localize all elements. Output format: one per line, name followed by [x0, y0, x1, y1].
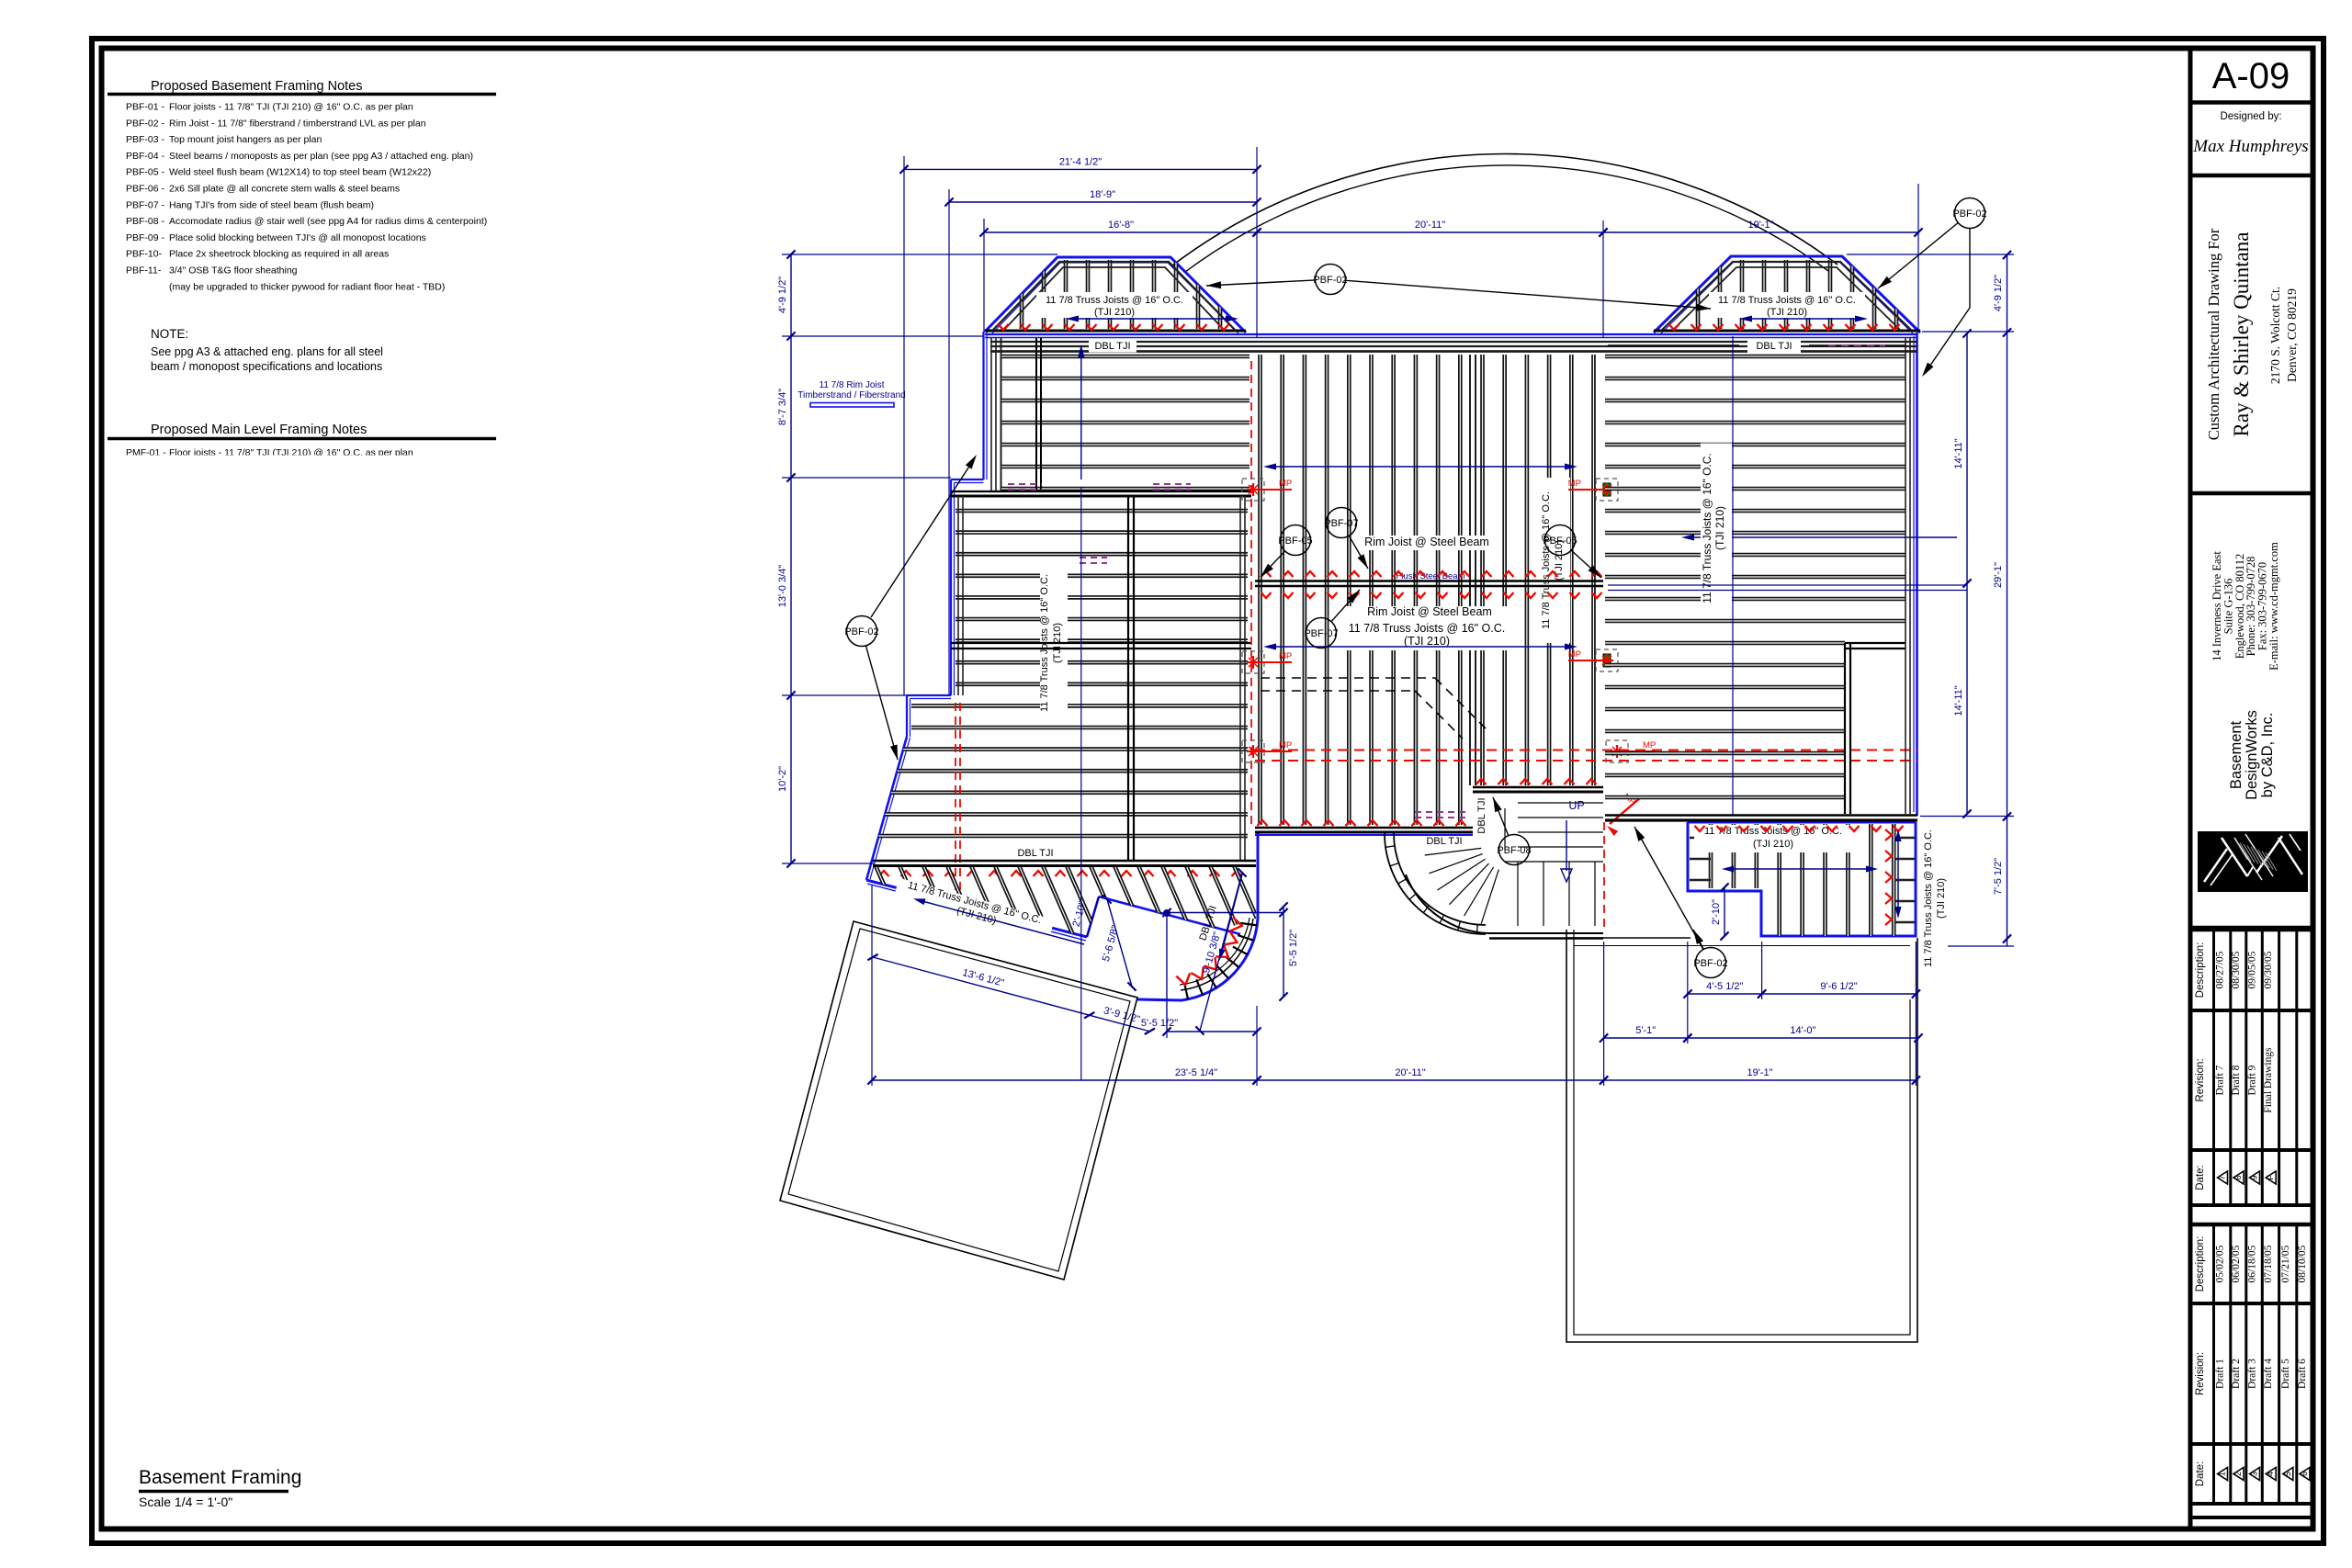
- svg-text:PBF-09 -: PBF-09 -: [126, 232, 165, 243]
- svg-text:14'-11": 14'-11": [1953, 685, 1964, 716]
- svg-text:Description:: Description:: [2195, 1236, 2206, 1292]
- svg-text:DBL TJI: DBL TJI: [1756, 341, 1792, 352]
- svg-text:(TJI 210): (TJI 210): [1753, 839, 1793, 850]
- svg-text:06/18/05: 06/18/05: [2247, 1245, 2258, 1282]
- svg-text:MP: MP: [1568, 479, 1581, 489]
- svg-text:PBF-06 -: PBF-06 -: [126, 184, 165, 195]
- svg-text:Top mount joist hangers as per: Top mount joist hangers as per plan: [169, 134, 322, 145]
- svg-text:PBF-07: PBF-07: [1324, 518, 1358, 529]
- svg-text:16'-8": 16'-8": [1108, 220, 1134, 231]
- svg-text:PBF-10-: PBF-10-: [126, 249, 163, 260]
- svg-text:9: 9: [2250, 1175, 2259, 1179]
- svg-text:2'-10": 2'-10": [1711, 899, 1722, 925]
- svg-text:2170 S. Wolcott Ct.: 2170 S. Wolcott Ct.: [2268, 287, 2282, 384]
- svg-text:07/21/05: 07/21/05: [2280, 1245, 2291, 1282]
- svg-text:8: 8: [2233, 1175, 2243, 1179]
- svg-text:PBF-05 -: PBF-05 -: [126, 167, 165, 178]
- svg-text:PBF-05: PBF-05: [1543, 536, 1577, 547]
- svg-text:08/10/05: 08/10/05: [2297, 1245, 2308, 1282]
- svg-text:14'-0": 14'-0": [1790, 1025, 1815, 1036]
- svg-text:2: 2: [2233, 1472, 2243, 1476]
- svg-text:Draft 7: Draft 7: [2215, 1065, 2226, 1095]
- svg-text:5'-5 1/2": 5'-5 1/2": [1141, 1018, 1178, 1029]
- svg-text:Rim Joist @ Steel Beam: Rim Joist @ Steel Beam: [1364, 536, 1489, 548]
- svg-text:PBF-08: PBF-08: [1497, 845, 1531, 856]
- svg-text:MP: MP: [1643, 740, 1656, 750]
- svg-text:Draft 3: Draft 3: [2247, 1359, 2258, 1389]
- svg-text:Basement: Basement: [2228, 720, 2245, 789]
- svg-text:Flush Steel Beam: Flush Steel Beam: [1396, 571, 1465, 581]
- svg-text:09/30/05: 09/30/05: [2263, 951, 2274, 988]
- svg-text:1: 1: [2218, 1472, 2227, 1476]
- svg-text:Max Humphreys: Max Humphreys: [2192, 137, 2308, 156]
- svg-text:PBF-02: PBF-02: [1693, 958, 1727, 969]
- svg-text:11 7/8 Truss Joists @ 16" O.C.: 11 7/8 Truss Joists @ 16" O.C.: [1046, 295, 1183, 306]
- svg-text:09/05/05: 09/05/05: [2247, 951, 2258, 988]
- svg-text:MP: MP: [1279, 479, 1292, 489]
- svg-text:2x6 Sill plate @ all concrete: 2x6 Sill plate @ all concrete stem walls…: [169, 184, 400, 195]
- svg-text:Denver, CO 80219: Denver, CO 80219: [2285, 288, 2299, 382]
- svg-text:Place 2x sheetrock blocking as: Place 2x sheetrock blocking as required …: [169, 249, 389, 260]
- svg-text:Revision:: Revision:: [2195, 1352, 2206, 1395]
- svg-text:DBL TJI: DBL TJI: [1476, 797, 1487, 833]
- svg-text:Hang TJI's from side of steel: Hang TJI's from side of steel beam (flus…: [169, 199, 374, 210]
- svg-text:14'-11": 14'-11": [1953, 438, 1964, 468]
- svg-text:10'-2": 10'-2": [777, 766, 788, 792]
- svg-text:4'-5 1/2": 4'-5 1/2": [1706, 981, 1743, 992]
- svg-text:7'-5 1/2": 7'-5 1/2": [1993, 858, 2004, 895]
- svg-text:Ray & Shirley Quintana: Ray & Shirley Quintana: [2230, 232, 2253, 437]
- svg-text:PBF-05: PBF-05: [1278, 536, 1312, 547]
- svg-text:11 7/8 Truss Joists @ 16" O.C.: 11 7/8 Truss Joists @ 16" O.C.: [1541, 491, 1552, 629]
- svg-text:Draft 9: Draft 9: [2247, 1065, 2258, 1095]
- svg-text:5: 5: [2283, 1472, 2292, 1476]
- svg-text:Final Drawings: Final Drawings: [2263, 1047, 2274, 1113]
- svg-text:by C&D, Inc.: by C&D, Inc.: [2259, 713, 2276, 798]
- svg-text:PBF-02: PBF-02: [1313, 275, 1347, 286]
- svg-text:(TJI 210): (TJI 210): [1404, 635, 1450, 648]
- svg-text:Description:: Description:: [2195, 942, 2206, 998]
- svg-text:Date:: Date:: [2195, 1165, 2206, 1190]
- svg-text:PBF-07 -: PBF-07 -: [126, 199, 165, 210]
- svg-text:Rim Joist @ Steel Beam: Rim Joist @ Steel Beam: [1367, 605, 1492, 618]
- svg-text:Rim Joist - 11 7/8" fiberstran: Rim Joist - 11 7/8" fiberstrand / timber…: [169, 118, 426, 129]
- svg-text:23'-5 1/4": 23'-5 1/4": [1175, 1067, 1217, 1078]
- svg-text:4'-9 1/2": 4'-9 1/2": [777, 276, 788, 313]
- svg-text:See ppg A3 & attached eng. pla: See ppg A3 & attached eng. plans for all…: [151, 345, 383, 358]
- svg-text:(may be upgraded to thicker py: (may be upgraded to thicker pywood for r…: [169, 281, 445, 292]
- svg-text:29'-1": 29'-1": [1993, 562, 2004, 588]
- svg-text:Place solid blocking between T: Place solid blocking between TJI's @ all…: [169, 232, 426, 243]
- svg-text:3: 3: [2250, 1472, 2259, 1476]
- svg-text:Steel beams / monoposts as per: Steel beams / monoposts as per plan (see…: [169, 151, 473, 162]
- svg-text:(TJI 210): (TJI 210): [1713, 506, 1726, 550]
- svg-text:beam / monopost specifications: beam / monopost specifications and locat…: [151, 360, 382, 373]
- svg-text:F: F: [2266, 1175, 2275, 1180]
- svg-text:11 7/8 Truss Joists @ 16" O.C.: 11 7/8 Truss Joists @ 16" O.C.: [1718, 295, 1856, 306]
- svg-text:3/4" OSB T&G floor sheathing: 3/4" OSB T&G floor sheathing: [169, 265, 298, 276]
- svg-text:Draft 4: Draft 4: [2263, 1359, 2274, 1389]
- svg-text:DBL TJI: DBL TJI: [1094, 341, 1130, 352]
- svg-text:5'-1": 5'-1": [1635, 1025, 1656, 1036]
- svg-text:07/18/05: 07/18/05: [2263, 1245, 2274, 1282]
- svg-text:MP: MP: [1279, 651, 1292, 661]
- svg-text:E-mail: www.cd-mgmt.com: E-mail: www.cd-mgmt.com: [2267, 542, 2280, 671]
- svg-text:(TJI 210): (TJI 210): [1094, 307, 1135, 318]
- svg-text:05/02/05: 05/02/05: [2215, 1245, 2226, 1282]
- svg-text:PBF-01 -: PBF-01 -: [126, 102, 165, 113]
- svg-text:11 7/8 Rim Joist: 11 7/8 Rim Joist: [820, 380, 885, 390]
- svg-text:DBL TJI: DBL TJI: [1017, 848, 1053, 859]
- svg-text:Draft 2: Draft 2: [2231, 1359, 2242, 1389]
- svg-text:5'-5 1/2": 5'-5 1/2": [1288, 930, 1299, 966]
- svg-text:PBF-02: PBF-02: [1952, 209, 1986, 220]
- svg-text:Draft 6: Draft 6: [2297, 1359, 2308, 1389]
- svg-text:Draft 5: Draft 5: [2280, 1359, 2291, 1389]
- svg-text:UP: UP: [1568, 799, 1584, 812]
- svg-text:Weld steel flush beam (W12X14): Weld steel flush beam (W12X14) to top st…: [169, 167, 431, 178]
- svg-text:11 7/8 Truss Joists @ 16" O.C.: 11 7/8 Truss Joists @ 16" O.C.: [1923, 829, 1934, 967]
- svg-text:Custom Architectural Drawing F: Custom Architectural Drawing For: [2205, 228, 2222, 440]
- svg-text:PBF-07: PBF-07: [1304, 628, 1338, 639]
- svg-text:19'-1": 19'-1": [1747, 220, 1773, 231]
- svg-text:Scale 1/4 = 1'-0": Scale 1/4 = 1'-0": [139, 1495, 232, 1509]
- svg-text:11 7/8 Truss Joists @ 16" O.C.: 11 7/8 Truss Joists @ 16" O.C.: [1701, 453, 1713, 604]
- svg-text:9'-6 1/2": 9'-6 1/2": [1820, 981, 1857, 992]
- svg-text:Proposed Main Level Framing No: Proposed Main Level Framing Notes: [151, 423, 367, 437]
- svg-text:PBF-11-: PBF-11-: [126, 265, 162, 276]
- svg-text:A-09: A-09: [2212, 56, 2290, 96]
- svg-text:11 7/8 Truss Joists @ 16" O.C.: 11 7/8 Truss Joists @ 16" O.C.: [1349, 622, 1505, 635]
- svg-text:21'-4 1/2": 21'-4 1/2": [1059, 156, 1102, 167]
- svg-text:06/02/05: 06/02/05: [2231, 1245, 2242, 1282]
- svg-text:20'-11": 20'-11": [1415, 220, 1445, 231]
- svg-text:Designed by:: Designed by:: [2220, 111, 2281, 122]
- svg-text:PBF-02: PBF-02: [844, 626, 878, 637]
- svg-text:8'-7 3/4": 8'-7 3/4": [777, 389, 788, 425]
- svg-text:PBF-02 -: PBF-02 -: [126, 118, 165, 129]
- svg-text:08/30/05: 08/30/05: [2231, 951, 2242, 988]
- svg-text:Draft 8: Draft 8: [2231, 1065, 2242, 1095]
- svg-text:NOTE:: NOTE:: [151, 327, 188, 341]
- svg-text:(TJI 210): (TJI 210): [1767, 307, 1807, 318]
- svg-text:18'-9": 18'-9": [1090, 189, 1115, 200]
- svg-text:7: 7: [2218, 1175, 2227, 1179]
- svg-text:6: 6: [2300, 1472, 2309, 1476]
- svg-text:DesignWorks: DesignWorks: [2244, 710, 2260, 800]
- svg-text:(TJI 210): (TJI 210): [1936, 878, 1947, 919]
- svg-text:19'-1": 19'-1": [1747, 1067, 1772, 1078]
- svg-text:Timberstrand / Fiberstrand: Timberstrand / Fiberstrand: [797, 390, 905, 400]
- svg-text:PBF-08 -: PBF-08 -: [126, 216, 165, 227]
- svg-text:4'-9 1/2": 4'-9 1/2": [1993, 275, 2004, 311]
- svg-text:PBF-03 -: PBF-03 -: [126, 134, 165, 145]
- svg-text:Date:: Date:: [2195, 1461, 2206, 1487]
- svg-text:Revision:: Revision:: [2195, 1058, 2206, 1101]
- svg-text:20'-11": 20'-11": [1395, 1067, 1425, 1078]
- svg-text:Basement Framing: Basement Framing: [139, 1467, 301, 1488]
- svg-text:PBF-04 -: PBF-04 -: [126, 151, 165, 162]
- svg-text:Accomodate radius @ stair well: Accomodate radius @ stair well (see ppg …: [169, 216, 487, 227]
- svg-text:13'-0 3/4": 13'-0 3/4": [777, 565, 788, 607]
- svg-text:MP: MP: [1279, 740, 1292, 750]
- svg-text:08/27/05: 08/27/05: [2215, 951, 2226, 988]
- svg-text:4: 4: [2266, 1472, 2275, 1476]
- svg-text:Floor joists - 11 7/8" TJI (TJ: Floor joists - 11 7/8" TJI (TJI 210) @ 1…: [169, 102, 413, 113]
- svg-text:MP: MP: [1568, 649, 1581, 660]
- svg-text:DBL TJI: DBL TJI: [1426, 836, 1462, 847]
- svg-text:Draft 1: Draft 1: [2215, 1359, 2226, 1389]
- svg-text:Proposed Basement Framing Note: Proposed Basement Framing Notes: [151, 79, 363, 94]
